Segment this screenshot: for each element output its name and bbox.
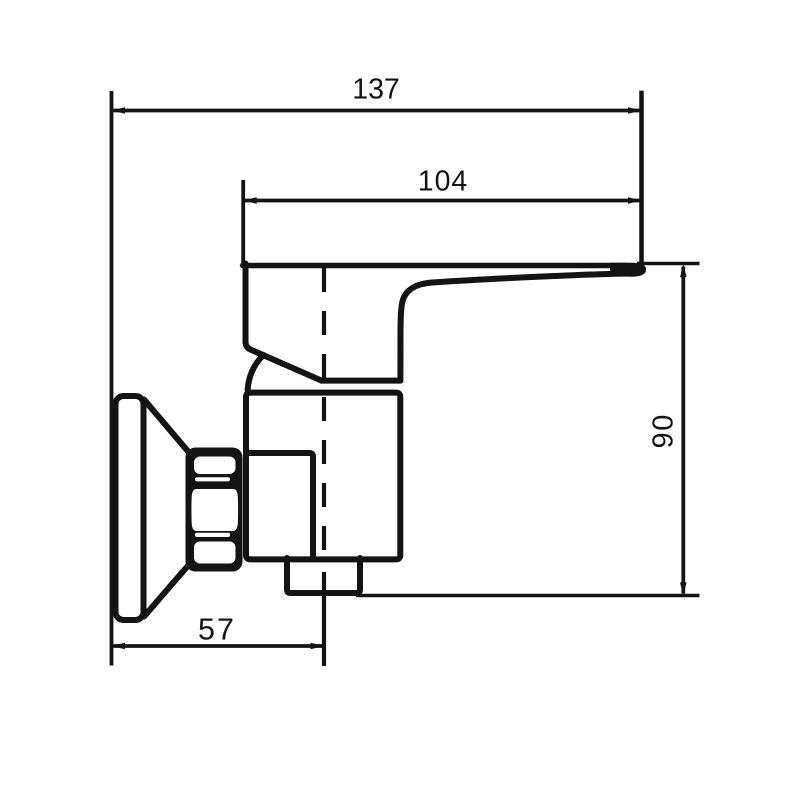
svg-text:104: 104 bbox=[418, 166, 469, 198]
svg-text:137: 137 bbox=[352, 74, 400, 106]
svg-text:57: 57 bbox=[198, 613, 236, 647]
svg-text:90: 90 bbox=[648, 413, 680, 448]
